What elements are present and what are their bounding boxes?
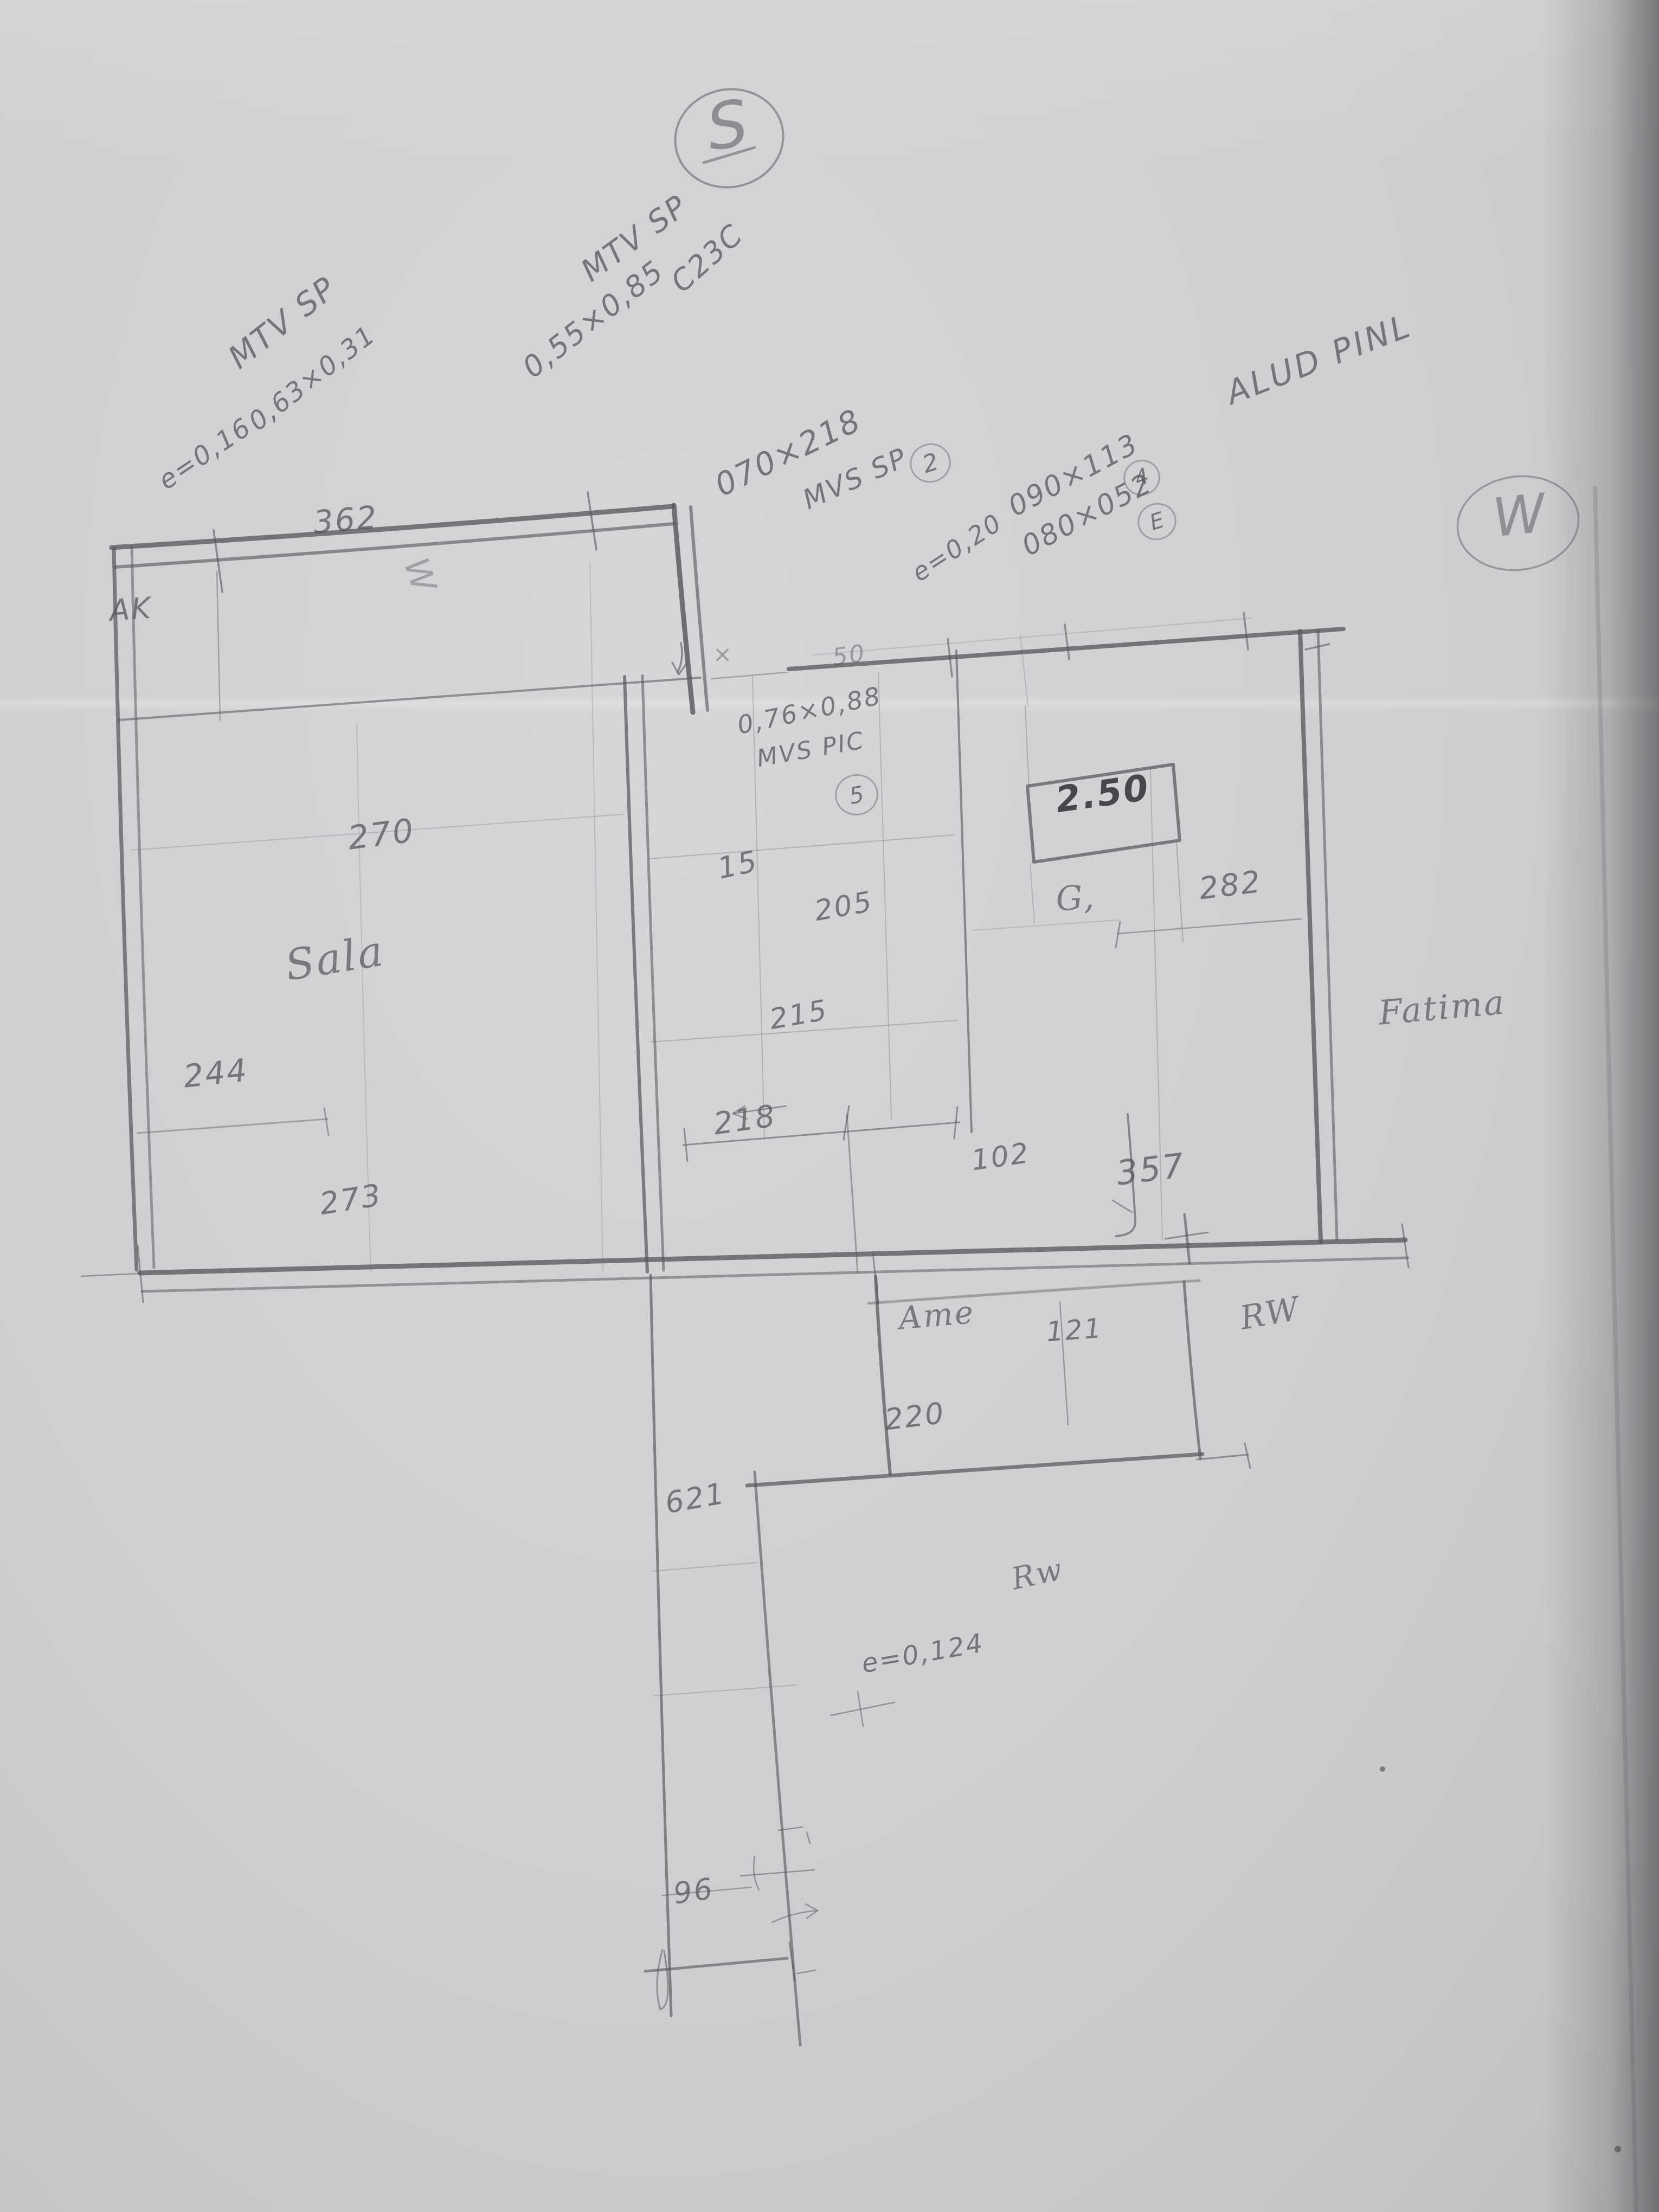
dim-357: 357 (1114, 1145, 1187, 1193)
dim-96: 96 (671, 1872, 716, 1911)
room-label-ak: AK (108, 591, 153, 628)
paper-background: S W MTV SP e=0,16 0,63×0,31 MTV SP 0,55×… (0, 0, 1659, 2212)
dim-270: 270 (346, 812, 417, 858)
dim-362: 362 (312, 499, 380, 541)
paper-edge-shadow (1595, 488, 1636, 2212)
g-mark: G, (1054, 877, 1097, 919)
strip-details (214, 492, 787, 720)
room-label-ame: Ame (897, 1294, 976, 1337)
dim-244: 244 (182, 1051, 250, 1095)
corridor-walls (645, 1275, 895, 2045)
compass-west-letter: W (1490, 483, 1550, 550)
ame-room-walls (747, 1253, 1250, 1486)
dim-121: 121 (1045, 1313, 1104, 1348)
paper-speck (1615, 2146, 1621, 2152)
paper-speck (1380, 1766, 1385, 1772)
mark-50: 50 (831, 639, 867, 671)
x-door-mark: × (713, 641, 734, 667)
